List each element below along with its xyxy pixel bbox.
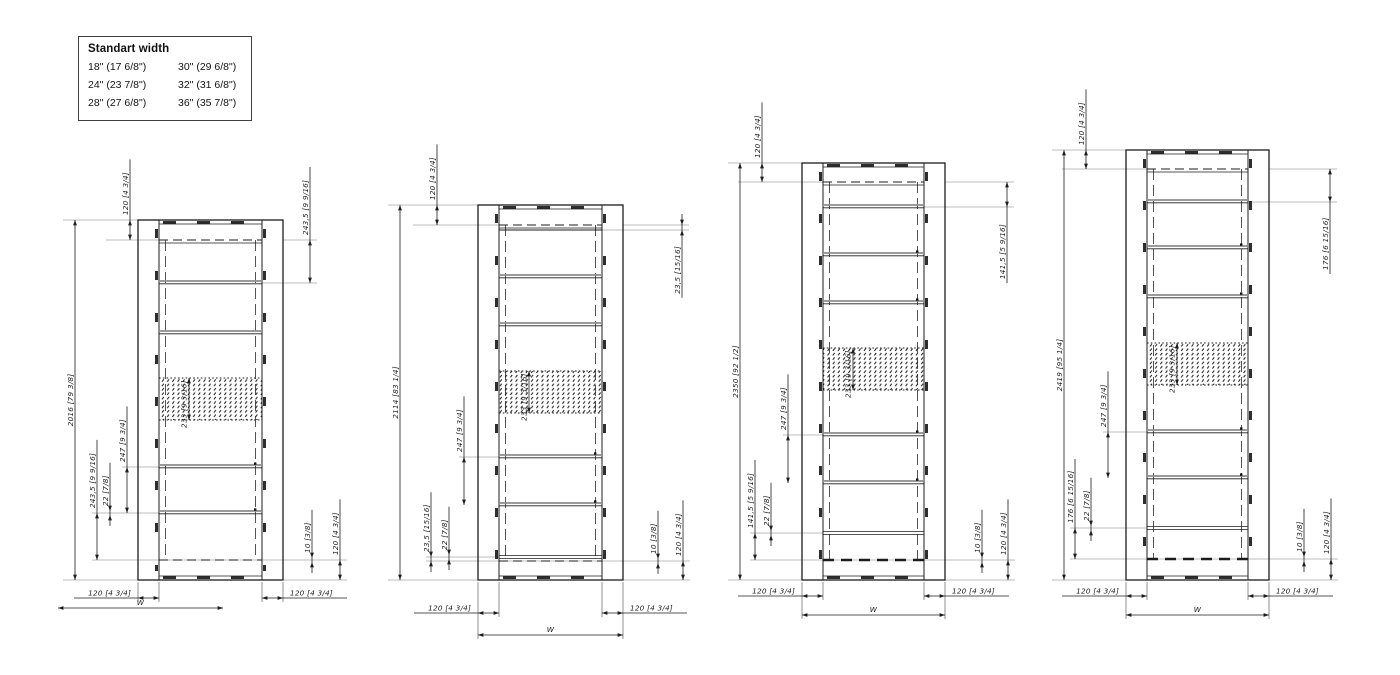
dimension-label: 120 [4 3/4] [999, 512, 1008, 555]
dimension-label: 243,5 [9 9/16] [88, 453, 97, 508]
dimension-label: 120 [4 3/4] [428, 157, 437, 200]
dimension-label: 120 [4 3/4] [331, 512, 340, 555]
dimension-label: W [547, 625, 555, 634]
dimension-label: 247 [9 3/4] [455, 409, 464, 452]
dimension-label: 120 [4 3/4] [630, 604, 673, 613]
dimension-label: 22 [7/8] [440, 519, 449, 550]
dimension-label: 23,5 [15/16] [673, 246, 682, 294]
fastener-dot [1240, 427, 1242, 429]
dimension-label: 247 [9 3/4] [118, 419, 127, 462]
fastener-dot [916, 250, 918, 252]
dimension-label: 120 [4 3/4] [674, 513, 683, 556]
dimension-label: 176 [6 15/16] [1321, 217, 1330, 270]
dimension-label: 176 [6 15/16] [1066, 470, 1075, 523]
dimension-label: 2016 [79 3/8] [66, 374, 75, 427]
dimension-label: 120 [4 3/4] [1276, 587, 1319, 596]
drawing-sheet: Standart width 18" (17 6/8") 30" (29 6/8… [0, 0, 1400, 670]
fastener-dot [916, 298, 918, 300]
fastener-dot [1240, 292, 1242, 294]
dimension-label: 120 [4 3/4] [952, 587, 995, 596]
dimension-label: 10 [3/8] [649, 523, 658, 554]
fastener-dot [916, 430, 918, 432]
hatch-band [1147, 343, 1248, 385]
dimension-label: 233 [9 3/16] [844, 350, 853, 398]
dimension-label: 141,5 [5 9/16] [746, 473, 755, 528]
dimension-label: 2350 [92 1/2] [731, 345, 740, 398]
dimension-label: 10 [3/8] [973, 522, 982, 553]
dimension-label: 23,5 [15/16] [422, 504, 431, 552]
dimension-label: 120 [4 3/4] [290, 589, 333, 598]
dimension-label: 233 [9 3/16] [180, 380, 189, 428]
dimension-label: 10 [3/8] [1295, 521, 1304, 552]
fastener-dot [916, 478, 918, 480]
dimension-label: 2419 [95 1/4] [1055, 339, 1064, 392]
dimension-label: 247 [9 3/4] [1099, 384, 1108, 427]
fastener-dot [254, 508, 256, 510]
dimension-label: 141,5 [5 9/16] [998, 224, 1007, 279]
dimension-label: 247 [9 3/4] [779, 387, 788, 430]
hatch-band [159, 378, 262, 420]
dimension-label: 22 [7/8] [101, 475, 110, 506]
frame-drawing-3: 2350 [92 1/2]120 [4 3/4]141,5 [5 9/16]24… [728, 102, 1015, 619]
dimension-label: 120 [4 3/4] [428, 604, 471, 613]
frame-drawing-2: 2114 [83 1/4]120 [4 3/4]23,5 [15/16]247 … [388, 144, 690, 639]
fastener-dot [1240, 473, 1242, 475]
dimension-label: 233 [9 3/16] [1168, 345, 1177, 393]
dimension-label: W [137, 598, 145, 607]
dimension-label: W [1194, 605, 1202, 614]
dimension-label: 120 [4 3/4] [753, 115, 762, 158]
dimension-label: 233 [9 3/16] [520, 373, 529, 421]
fastener-dot [594, 500, 596, 502]
dimension-label: 22 [7/8] [762, 495, 771, 526]
dimension-label: 120 [4 3/4] [121, 172, 130, 215]
hatch-band [499, 371, 602, 413]
dimension-label: W [870, 605, 878, 614]
fastener-dot [1240, 243, 1242, 245]
dimension-label: 243,5 [9 9/16] [301, 180, 310, 235]
dimension-label: 120 [4 3/4] [1322, 511, 1331, 554]
dimension-label: 120 [4 3/4] [752, 587, 795, 596]
frame-drawing-4: 2419 [95 1/4]120 [4 3/4]176 [6 15/16]247… [1052, 89, 1338, 619]
dimension-label: 10 [3/8] [303, 522, 312, 553]
fastener-dot [594, 452, 596, 454]
frame-drawing-1: 2016 [79 3/8]120 [4 3/4]243,5 [9 9/16]24… [58, 159, 347, 610]
dimension-label: 22 [7/8] [1082, 490, 1091, 521]
dimension-label: 2114 [83 1/4] [391, 366, 400, 419]
technical-drawing-canvas: 2016 [79 3/8]120 [4 3/4]243,5 [9 9/16]24… [0, 0, 1400, 670]
dimension-label: 120 [4 3/4] [1076, 587, 1119, 596]
hatch-band [823, 348, 924, 390]
dimension-label: 120 [4 3/4] [1077, 102, 1086, 145]
fastener-dot [254, 462, 256, 464]
dimension-label: 120 [4 3/4] [88, 589, 131, 598]
frame-drawings: 2016 [79 3/8]120 [4 3/4]243,5 [9 9/16]24… [0, 0, 1400, 670]
